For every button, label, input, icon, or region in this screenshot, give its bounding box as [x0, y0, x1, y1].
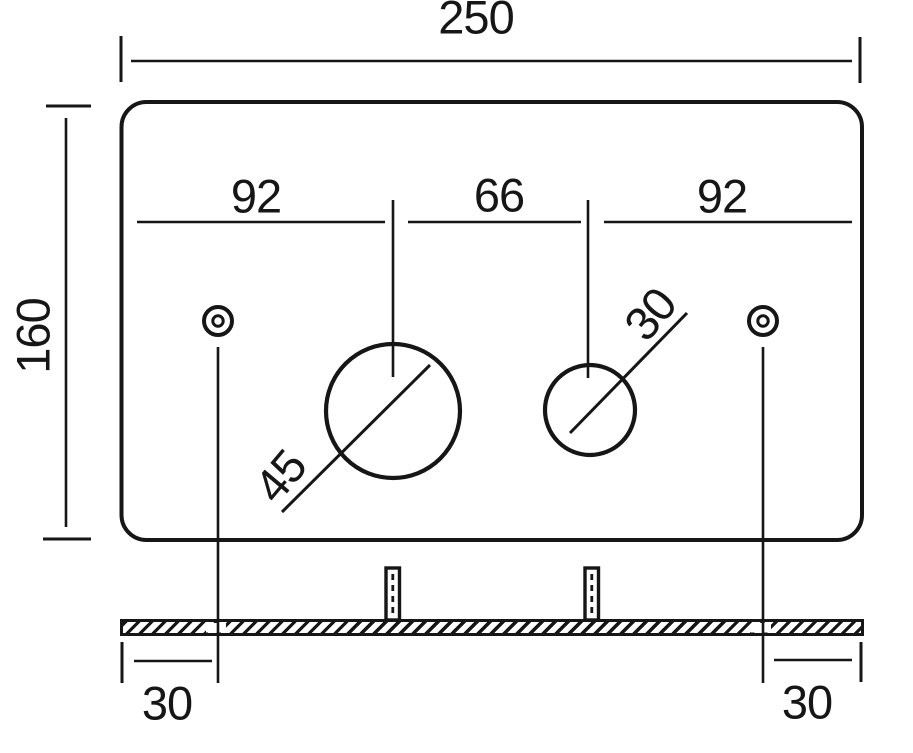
hatch-break-right: [751, 623, 771, 633]
dimension-drawing: 250 160 92 66 92 45 30 30 30: [0, 0, 913, 753]
center-span-label: 66: [474, 172, 524, 219]
hatch-break-left: [206, 623, 226, 633]
drawing-canvas: [0, 0, 913, 753]
right-span-label: 92: [697, 173, 747, 220]
overall-height-label: 160: [10, 298, 57, 373]
screw-hole-right-outer: [749, 307, 777, 335]
left-span-label: 92: [231, 173, 281, 220]
diameter-leader-large-hole: [282, 365, 430, 512]
screw-hole-left-inner: [213, 316, 223, 326]
screw-hole-right-inner: [758, 316, 768, 326]
overall-width-label: 250: [438, 0, 513, 41]
left-screw-offset-label: 30: [142, 680, 192, 727]
screw-hole-left-outer: [204, 307, 232, 335]
right-screw-offset-label: 30: [782, 679, 832, 726]
